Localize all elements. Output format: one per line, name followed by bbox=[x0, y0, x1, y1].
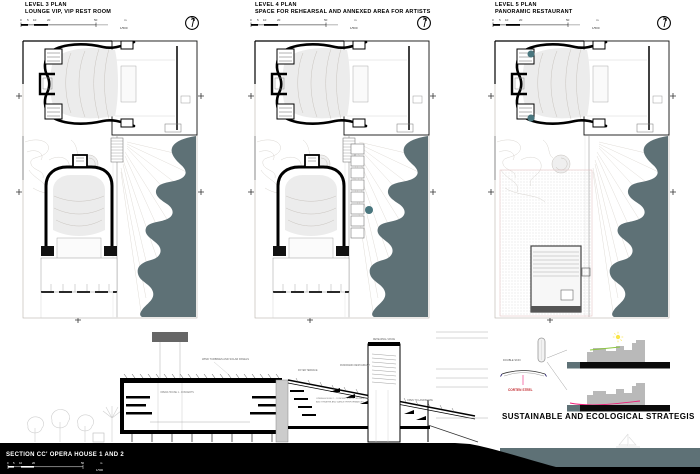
plan-header-level4: LEVEL 4 PLAN SPACE FOR REHEARSAL AND ANN… bbox=[255, 2, 480, 15]
svg-text:10: 10 bbox=[19, 461, 23, 465]
double-skin-label: DOUBLE SKIN bbox=[503, 358, 521, 362]
svg-text:20: 20 bbox=[277, 18, 281, 22]
svg-text:1/500: 1/500 bbox=[120, 26, 128, 30]
label-hall1: OPERA HOUSE 1 - CONCERTS bbox=[160, 391, 194, 394]
eco-diagram-corten bbox=[567, 383, 670, 412]
svg-text:m: m bbox=[596, 18, 599, 22]
svg-text:5: 5 bbox=[499, 18, 501, 22]
label-landscape: OPEN TO LANDSCAPE bbox=[407, 399, 433, 402]
corten-detail bbox=[501, 371, 547, 386]
svg-text:50: 50 bbox=[566, 18, 570, 22]
svg-text:20: 20 bbox=[32, 461, 36, 465]
sun-icon bbox=[613, 332, 623, 342]
plan-subtitle: LOUNGE VIP, VIP REST ROOM bbox=[25, 9, 250, 16]
section-hall2 bbox=[288, 332, 488, 442]
label-foyer: FOYER TERRACE bbox=[298, 369, 318, 372]
scale-bar-level3: 05 1020 50 m 1/500 bbox=[20, 16, 160, 32]
eco-panel: DOUBLE SKIN CORTEN STEEL SUSTAINABLE AND… bbox=[490, 330, 700, 425]
balcony-steps bbox=[290, 390, 316, 416]
trees bbox=[28, 406, 121, 442]
svg-text:1/500: 1/500 bbox=[350, 26, 358, 30]
svg-text:0: 0 bbox=[492, 18, 494, 22]
svg-text:50: 50 bbox=[94, 18, 98, 22]
svg-text:50: 50 bbox=[81, 461, 85, 465]
corten-steel-label: CORTEN STEEL bbox=[508, 388, 533, 392]
svg-text:0: 0 bbox=[250, 18, 252, 22]
plan-drawing-level4 bbox=[247, 40, 437, 324]
plan-header-level3: LEVEL 3 PLAN LOUNGE VIP, VIP REST ROOM bbox=[25, 2, 250, 15]
flytower-2 bbox=[368, 342, 400, 442]
svg-text:m: m bbox=[354, 18, 357, 22]
label-roof: WIND TURBINES AND SOLAR PANELS bbox=[202, 357, 249, 361]
solar-panel-hatch bbox=[124, 374, 279, 378]
svg-text:20: 20 bbox=[519, 18, 523, 22]
roof-slab bbox=[120, 378, 282, 383]
svg-text:10: 10 bbox=[505, 18, 509, 22]
plan-header-level5: LEVEL 5 PLAN PANORAMIC RESTAURANT bbox=[495, 2, 700, 15]
svg-text:1/500: 1/500 bbox=[592, 26, 600, 30]
balconies bbox=[126, 396, 276, 415]
label-hall2b: AND THEATRE AND DANCE PERFORMANCES bbox=[316, 401, 364, 404]
north-arrow-icon bbox=[656, 15, 672, 31]
svg-text:20: 20 bbox=[47, 18, 51, 22]
scale-bar-level5: 05 1020 50 m 1/500 bbox=[492, 16, 632, 32]
datum-lines bbox=[436, 332, 488, 418]
section-title: SECTION CC' OPERA HOUSE 1 AND 2 bbox=[6, 452, 124, 458]
pilotis bbox=[132, 434, 272, 442]
section-hall1 bbox=[120, 332, 288, 442]
north-arrow-icon bbox=[184, 15, 200, 31]
svg-text:5: 5 bbox=[27, 18, 29, 22]
eco-title: SUSTAINABLE AND ECOLOGICAL STRATEGIS bbox=[502, 412, 695, 421]
svg-text:0: 0 bbox=[20, 18, 22, 22]
svg-text:50: 50 bbox=[324, 18, 328, 22]
flytower-1 bbox=[152, 332, 188, 342]
core bbox=[276, 380, 288, 442]
sailboat bbox=[616, 434, 640, 447]
svg-text:1/500: 1/500 bbox=[96, 468, 103, 472]
accent-dot bbox=[365, 206, 373, 214]
svg-text:m: m bbox=[124, 18, 127, 22]
plan-subtitle: SPACE FOR REHEARSAL AND ANNEXED AREA FOR… bbox=[255, 9, 480, 16]
accent-dot bbox=[528, 115, 535, 122]
north-arrow-icon bbox=[416, 15, 432, 31]
label-hall2: OPERA HOUSE 2 - CONCERTS WITH ORCHESTRA bbox=[316, 397, 369, 400]
label-tower: REHEARSAL SPACE bbox=[373, 338, 396, 341]
plan-drawing-level5 bbox=[487, 40, 677, 324]
svg-text:10: 10 bbox=[263, 18, 267, 22]
eco-diagram-summer bbox=[567, 332, 670, 369]
plan-drawing-level3 bbox=[15, 40, 205, 324]
label-restaurant: PANORAMIC RESTAURANT bbox=[340, 364, 370, 367]
floor-slab bbox=[120, 430, 285, 434]
accent-dot bbox=[528, 51, 535, 58]
svg-text:10: 10 bbox=[33, 18, 37, 22]
svg-text:5: 5 bbox=[257, 18, 259, 22]
scale-bar-level4: 05 1020 50 m 1/500 bbox=[250, 16, 390, 32]
